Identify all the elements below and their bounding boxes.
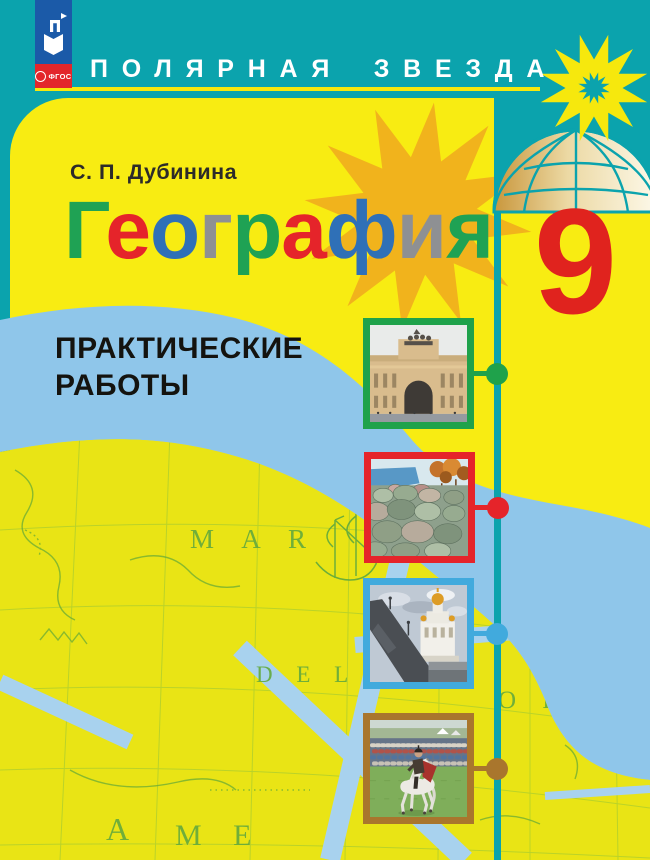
title-letter: и xyxy=(397,185,446,276)
series-banner-title: ПОЛЯРНАЯ ЗВЕЗДА xyxy=(90,55,545,84)
title-letter: я xyxy=(446,185,493,276)
title-letter: ф xyxy=(326,185,397,276)
photo1-connector-dot xyxy=(486,363,508,385)
photo-arch-building xyxy=(363,318,474,429)
book-cover: M A R D E L O R T M E A xyxy=(0,0,650,860)
map-label-a: A xyxy=(106,811,129,847)
map-label-mar: M A R xyxy=(190,524,317,554)
photo1-frame xyxy=(363,318,474,429)
subtitle: ПРАКТИЧЕСКИЕ РАБОТЫ xyxy=(55,331,303,404)
photo3-frame xyxy=(363,578,474,689)
photo2-connector-dot xyxy=(487,497,509,519)
arch-building-image xyxy=(370,325,467,422)
photo4-frame xyxy=(363,713,474,824)
title-letter: о xyxy=(150,185,199,276)
grade-number: 9 xyxy=(501,186,650,336)
map-label-del: D E L xyxy=(256,662,357,687)
subtitle-line2: РАБОТЫ xyxy=(55,368,303,405)
subtitle-line1: ПРАКТИЧЕСКИЕ xyxy=(55,331,303,368)
cathedral-bridge-image xyxy=(370,585,467,682)
title-letter: г xyxy=(199,185,232,276)
publisher-logo xyxy=(35,0,72,64)
title-letter: Г xyxy=(64,185,105,276)
photo-horse-rider xyxy=(363,713,474,824)
title-letter: е xyxy=(105,185,150,276)
horse-rider-image xyxy=(370,720,467,817)
photo2-frame xyxy=(364,452,475,563)
title-letter: р xyxy=(232,185,281,276)
fgos-emblem-icon xyxy=(35,71,46,82)
photo4-connector-dot xyxy=(486,758,508,780)
fgos-badge: ФГОС xyxy=(35,64,72,88)
photo-cathedral-bridge xyxy=(363,578,474,689)
rocky-seashore-image xyxy=(371,459,468,556)
photo-rocky-seashore xyxy=(364,452,475,563)
map-label-me: M E xyxy=(175,819,264,852)
cover-artwork: M A R D E L O R T M E A xyxy=(0,0,650,860)
publisher-book-icon xyxy=(35,0,72,64)
title-letter: а xyxy=(281,185,326,276)
photo3-connector-dot xyxy=(486,623,508,645)
fgos-label: ФГОС xyxy=(48,72,71,81)
book-title: География xyxy=(64,182,493,280)
